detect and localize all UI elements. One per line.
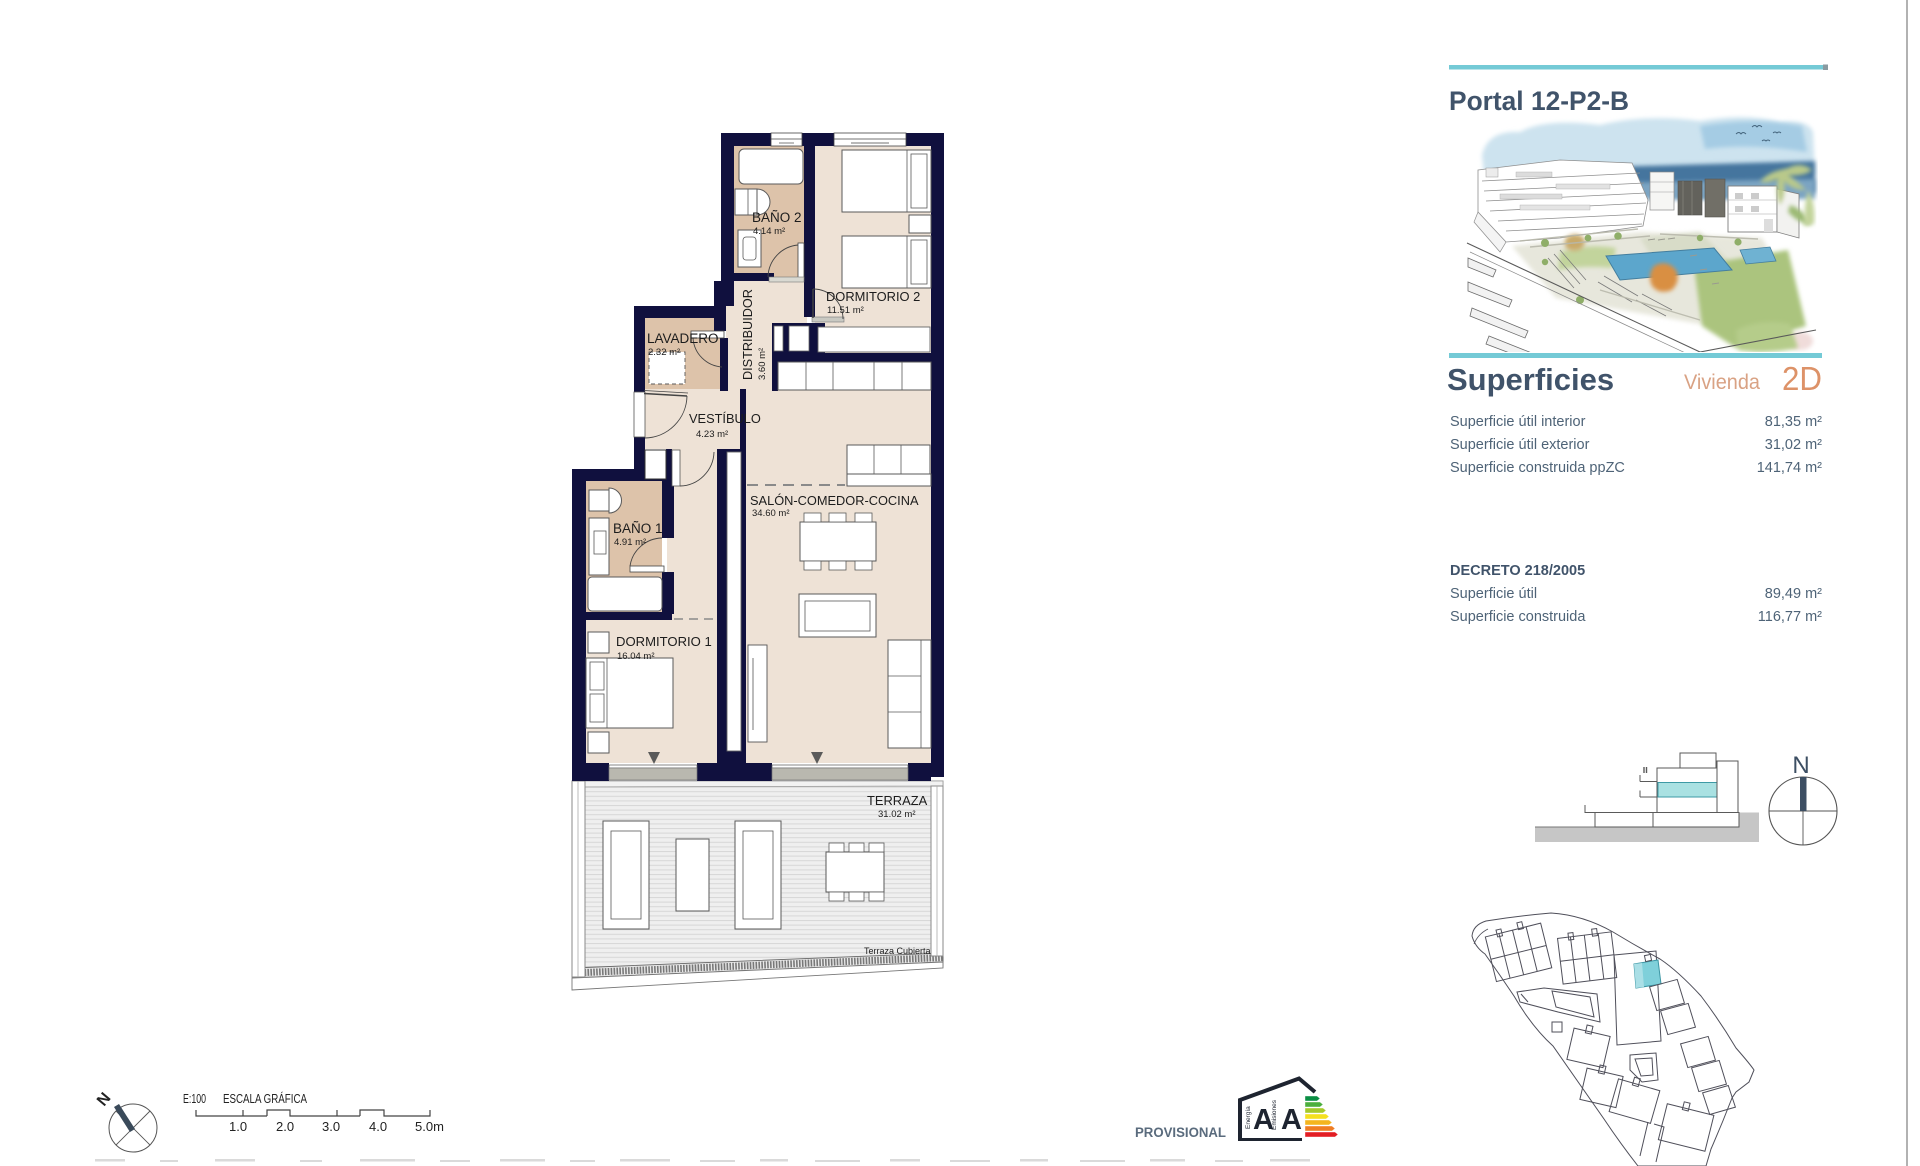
svg-text:DISTRIBUIDOR: DISTRIBUIDOR bbox=[741, 289, 755, 380]
svg-text:Superficie útil: Superficie útil bbox=[1450, 586, 1537, 602]
svg-text:Emisiones: Emisiones bbox=[1271, 1099, 1278, 1130]
svg-text:TERRAZA: TERRAZA bbox=[867, 793, 928, 808]
svg-text:89,49 m²: 89,49 m² bbox=[1765, 586, 1822, 602]
svg-text:LAVADERO: LAVADERO bbox=[647, 331, 719, 346]
svg-text:Superficie construida ppZC: Superficie construida ppZC bbox=[1450, 460, 1625, 476]
svg-text:SALÓN-COMEDOR-COCINA: SALÓN-COMEDOR-COCINA bbox=[750, 493, 919, 508]
svg-text:34.60 m²: 34.60 m² bbox=[752, 508, 790, 519]
svg-text:81,35 m²: 81,35 m² bbox=[1765, 414, 1822, 430]
svg-text:4.14 m²: 4.14 m² bbox=[753, 226, 785, 237]
svg-text:4.0: 4.0 bbox=[369, 1119, 387, 1134]
svg-text:Superficie útil interior: Superficie útil interior bbox=[1450, 414, 1586, 430]
svg-text:2D: 2D bbox=[1782, 360, 1822, 397]
svg-text:Superficies: Superficies bbox=[1447, 362, 1614, 397]
svg-text:2.0: 2.0 bbox=[276, 1119, 294, 1134]
svg-text:4.23 m²: 4.23 m² bbox=[696, 429, 728, 440]
svg-text:31,02 m²: 31,02 m² bbox=[1765, 437, 1822, 453]
svg-text:5.0m: 5.0m bbox=[415, 1119, 444, 1134]
svg-text:3.0: 3.0 bbox=[322, 1119, 340, 1134]
svg-text:E:100: E:100 bbox=[183, 1092, 206, 1106]
svg-text:Superficie construida: Superficie construida bbox=[1450, 609, 1586, 625]
svg-text:Superficie útil exterior: Superficie útil exterior bbox=[1450, 437, 1590, 453]
svg-text:DORMITORIO 1: DORMITORIO 1 bbox=[616, 634, 712, 649]
svg-text:Energía: Energía bbox=[1245, 1106, 1252, 1129]
svg-text:BAÑO 2: BAÑO 2 bbox=[752, 210, 802, 225]
svg-text:N: N bbox=[94, 1090, 114, 1110]
svg-text:VESTÍBULO: VESTÍBULO bbox=[689, 411, 761, 426]
svg-text:PROVISIONAL: PROVISIONAL bbox=[1135, 1125, 1226, 1140]
svg-text:Portal 12-P2-B: Portal 12-P2-B bbox=[1449, 86, 1629, 116]
svg-text:141,74 m²: 141,74 m² bbox=[1757, 460, 1822, 476]
svg-text:Vivienda: Vivienda bbox=[1684, 371, 1760, 394]
svg-text:3.60 m²: 3.60 m² bbox=[757, 348, 768, 380]
svg-text:BAÑO 1: BAÑO 1 bbox=[613, 521, 663, 536]
svg-text:11.51 m²: 11.51 m² bbox=[827, 305, 864, 316]
svg-text:DORMITORIO 2: DORMITORIO 2 bbox=[826, 289, 920, 304]
svg-text:16.04 m²: 16.04 m² bbox=[617, 651, 655, 662]
svg-text:DECRETO 218/2005: DECRETO 218/2005 bbox=[1450, 563, 1585, 579]
svg-text:ESCALA GRÁFICA: ESCALA GRÁFICA bbox=[223, 1091, 308, 1106]
svg-text:31.02 m²: 31.02 m² bbox=[878, 809, 916, 820]
svg-text:1.0: 1.0 bbox=[229, 1119, 247, 1134]
svg-text:2.32 m²: 2.32 m² bbox=[648, 347, 680, 358]
svg-text:4.91 m²: 4.91 m² bbox=[614, 537, 646, 548]
svg-text:116,77 m²: 116,77 m² bbox=[1758, 609, 1822, 625]
svg-text:A: A bbox=[1281, 1104, 1302, 1136]
svg-text:N: N bbox=[1792, 752, 1809, 779]
svg-text:Terraza Cubierta: Terraza Cubierta bbox=[864, 946, 931, 956]
